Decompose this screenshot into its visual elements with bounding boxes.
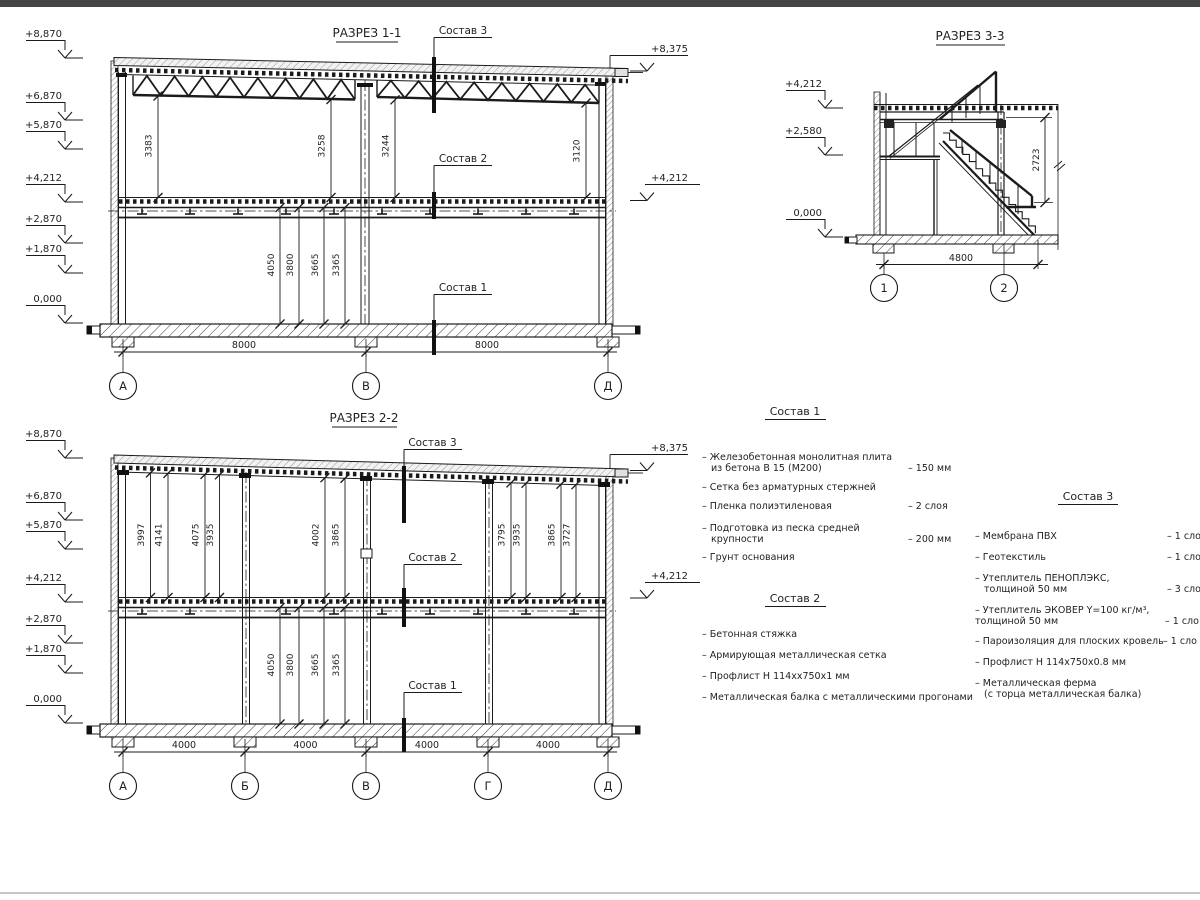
elevation-arrow-icon xyxy=(647,463,654,471)
dimension-text: 3935 xyxy=(513,524,523,547)
edge-beam-cap xyxy=(845,237,849,243)
callout-label: Состав 3 xyxy=(408,437,456,449)
dimension-text: 3800 xyxy=(286,253,296,276)
roof-band xyxy=(114,58,628,77)
axis-label: 1 xyxy=(880,281,887,295)
callout-label: Состав 2 xyxy=(408,552,456,564)
elevation-arrow-icon xyxy=(65,50,72,58)
section-title: РАЗРЕЗ 2-2 xyxy=(329,411,398,425)
elevation-arrow-icon xyxy=(647,63,654,71)
dimension-text: 3244 xyxy=(382,134,392,157)
elevation-value: +8,870 xyxy=(25,29,62,40)
dimension-text: 3997 xyxy=(137,524,147,547)
sostav-marker-bar xyxy=(432,57,436,113)
wall-hatch xyxy=(606,469,613,725)
elevation-arrow-icon xyxy=(65,315,72,323)
elevation-arrow-icon xyxy=(58,112,65,120)
list-item-value: – 3 сло xyxy=(1167,584,1200,595)
list-item-value: – 200 мм xyxy=(908,534,951,545)
elevation-arrow-icon xyxy=(818,229,825,237)
dimension-text: 3727 xyxy=(563,524,573,547)
slab-band xyxy=(100,724,612,737)
purlin-bracket xyxy=(117,470,129,475)
dimension-text: 8000 xyxy=(232,340,256,351)
list-item-text: – Бетонная стяжка xyxy=(702,629,797,640)
elevation-arrow-icon xyxy=(818,100,825,108)
column-splice xyxy=(361,549,372,558)
elevation-value: +4,212 xyxy=(25,573,62,584)
elevation-value: +8,870 xyxy=(25,429,62,440)
dimension-text: 2723 xyxy=(1032,149,1042,172)
list-item-text: – Пленка полиэтиленовая xyxy=(702,501,832,512)
list-item-text: из бетона В 15 (М200) xyxy=(711,463,822,474)
wall-hatch xyxy=(606,68,613,325)
elevation-value: +4,212 xyxy=(25,173,62,184)
elevation-arrow-icon xyxy=(58,50,65,58)
elevation-value: +8,375 xyxy=(651,44,688,55)
elevation-arrow-icon xyxy=(825,229,832,237)
axis-label: В xyxy=(362,779,370,793)
elevation-value: +5,870 xyxy=(25,520,62,531)
axis-label: Д xyxy=(604,779,613,793)
dimension-text: 4000 xyxy=(536,740,560,751)
list-item-value: – 150 мм xyxy=(908,463,951,474)
elevation-arrow-icon xyxy=(825,100,832,108)
list-item-value: – 1 сло xyxy=(1165,616,1199,627)
elevation-arrow-icon xyxy=(58,594,65,602)
list-item-text: – Мембрана ПВХ xyxy=(975,531,1057,542)
slab-band xyxy=(856,235,1058,244)
elevation-arrow-icon xyxy=(647,590,654,598)
list-item-text: крупности xyxy=(711,534,764,545)
elevation-value: +4,212 xyxy=(651,571,688,582)
list-item-text: – Профлист Н 114хх750х1 мм xyxy=(702,671,850,682)
edge-beam-cap xyxy=(87,726,92,734)
dimension-text: 4000 xyxy=(172,740,196,751)
elevation-arrow-icon xyxy=(65,450,72,458)
dimension-text: 4800 xyxy=(949,253,973,264)
dimension-text: 4002 xyxy=(312,524,322,547)
dimension-text: 3383 xyxy=(145,135,155,158)
callout-label: Состав 3 xyxy=(439,25,487,37)
sostav-marker-bar xyxy=(402,718,406,752)
elevation-value: 0,000 xyxy=(33,294,62,305)
edge-beam-cap xyxy=(87,326,92,334)
truss-bearing xyxy=(357,83,373,87)
list-item-text: (с торца металлическая балка) xyxy=(984,689,1141,700)
elevation-value: +4,212 xyxy=(785,79,822,90)
beam-bracket xyxy=(884,120,894,128)
list-item-text: толщиной 50 мм xyxy=(975,616,1058,627)
list-title: Состав 3 xyxy=(1063,490,1114,503)
elevation-value: +2,870 xyxy=(25,614,62,625)
elevation-value: +1,870 xyxy=(25,644,62,655)
elevation-arrow-icon xyxy=(640,590,647,598)
elevation-arrow-icon xyxy=(640,63,647,71)
roof-eave-cap xyxy=(615,69,628,77)
elevation-value: +1,870 xyxy=(25,244,62,255)
section-3-3: РАЗРЕЗ 3-3+4,212+2,5800,0002723480012 xyxy=(785,29,1065,302)
elevation-arrow-icon xyxy=(58,141,65,149)
elevation-value: +2,870 xyxy=(25,214,62,225)
elevation-arrow-icon xyxy=(58,265,65,273)
dimension-text: 3665 xyxy=(311,654,321,677)
elevation-arrow-icon xyxy=(640,193,647,201)
construction-drawing-canvas: РАЗРЕЗ 1-1+8,870+6,870+5,870+4,212+2,870… xyxy=(0,0,1200,900)
list-title: Состав 2 xyxy=(770,592,821,605)
elevation-arrow-icon xyxy=(640,463,647,471)
elevation-arrow-icon xyxy=(65,541,72,549)
dimension-text: 8000 xyxy=(475,340,499,351)
dimension-text: 3365 xyxy=(332,254,342,277)
elevation-value: 0,000 xyxy=(793,208,822,219)
section-2-2: РАЗРЕЗ 2-2+8,870+6,870+5,870+4,212+2,870… xyxy=(25,411,700,800)
purlin-bracket xyxy=(360,476,372,481)
dimension-text: 4050 xyxy=(267,653,277,676)
elevation-arrow-icon xyxy=(58,635,65,643)
elevation-arrow-icon xyxy=(58,235,65,243)
list-item-text: – Утеплитель ЭКОВЕР Y=100 кг/м³, xyxy=(975,605,1149,616)
list-item-text: – Грунт основания xyxy=(702,552,795,563)
sostav-marker-bar xyxy=(402,466,406,523)
roof-eave-cap xyxy=(615,469,628,477)
dimension-text: 3665 xyxy=(311,254,321,277)
elevation-arrow-icon xyxy=(65,112,72,120)
dimension-text: 4000 xyxy=(415,740,439,751)
edge-beam-cap xyxy=(635,326,640,334)
elevation-arrow-icon xyxy=(65,512,72,520)
bottom-border-line xyxy=(0,892,1200,894)
callout-label: Состав 2 xyxy=(439,153,487,165)
elevation-arrow-icon xyxy=(58,665,65,673)
elevation-value: +8,375 xyxy=(651,443,688,454)
list-item-text: – Железобетонная монолитная плита xyxy=(702,452,892,463)
elevation-value: +6,870 xyxy=(25,491,62,502)
list-item-text: – Подготовка из песка средней xyxy=(702,523,860,534)
elevation-value: +4,212 xyxy=(651,173,688,184)
elevation-arrow-icon xyxy=(65,235,72,243)
elevation-arrow-icon xyxy=(65,265,72,273)
dimension-text: 3120 xyxy=(573,139,583,162)
list-item-value: – 1 сло xyxy=(1167,552,1200,563)
section-1-1: РАЗРЕЗ 1-1+8,870+6,870+5,870+4,212+2,870… xyxy=(25,25,700,400)
slab-band xyxy=(100,324,612,337)
dimension-text: 4000 xyxy=(293,740,317,751)
elevation-arrow-icon xyxy=(58,715,65,723)
beam-bracket xyxy=(996,120,1006,128)
list-item-text: – Металлическая балка с металлическими п… xyxy=(702,692,973,703)
footing xyxy=(873,244,894,253)
elevation-arrow-icon xyxy=(58,541,65,549)
axis-label: В xyxy=(362,379,370,393)
list-title: Состав 1 xyxy=(770,405,821,418)
elevation-arrow-icon xyxy=(647,193,654,201)
list-item-value: – 2 слоя xyxy=(908,501,948,512)
callout-label: Состав 1 xyxy=(439,282,487,294)
dimension-text: 4050 xyxy=(267,253,277,276)
dimension-text: 4075 xyxy=(192,524,202,547)
footing xyxy=(993,244,1014,253)
elevation-arrow-icon xyxy=(65,594,72,602)
wall-hatch xyxy=(874,92,880,237)
elevation-arrow-icon xyxy=(65,194,72,202)
elevation-arrow-icon xyxy=(818,147,825,155)
section-title: РАЗРЕЗ 1-1 xyxy=(332,26,401,40)
list-item-value: – 1 сло xyxy=(1167,531,1200,542)
elevation-value: +2,580 xyxy=(785,126,822,137)
section-title: РАЗРЕЗ 3-3 xyxy=(935,29,1004,43)
dimension-text: 3365 xyxy=(332,654,342,677)
elevation-arrow-icon xyxy=(65,141,72,149)
callout-label: Состав 1 xyxy=(408,680,456,692)
axis-label: А xyxy=(119,779,127,793)
elevation-value: 0,000 xyxy=(33,694,62,705)
wall-hatch xyxy=(111,61,118,325)
elevation-arrow-icon xyxy=(58,315,65,323)
dimension-text: 3258 xyxy=(318,134,328,157)
edge-beam-cap xyxy=(635,726,640,734)
dimension-text: 3800 xyxy=(286,653,296,676)
list-item-text: – Армирующая металлическая сетка xyxy=(702,650,887,661)
elevation-arrow-icon xyxy=(58,194,65,202)
top-border-band xyxy=(0,0,1200,7)
truss-chord xyxy=(377,97,599,103)
list-item-text: – Металлическая ферма xyxy=(975,678,1096,689)
elevation-arrow-icon xyxy=(58,450,65,458)
dimension-text: 3865 xyxy=(548,524,558,547)
axis-label: Г xyxy=(484,779,491,793)
list-item-text: – Пароизоляция для плоских кровель xyxy=(975,636,1164,647)
stair-steps xyxy=(943,133,1035,233)
list-item-text: толщиной 50 мм xyxy=(984,584,1067,595)
sostav-marker-bar xyxy=(432,192,436,219)
elevation-arrow-icon xyxy=(825,147,832,155)
elevation-arrow-icon xyxy=(65,665,72,673)
axis-label: Д xyxy=(604,379,613,393)
stair-stringer xyxy=(888,85,978,157)
dimension-text: 3865 xyxy=(332,524,342,547)
purlin-bracket xyxy=(239,473,251,478)
dimension-text: 3935 xyxy=(206,524,216,547)
purlin-bracket xyxy=(598,482,610,487)
elevation-arrow-icon xyxy=(65,715,72,723)
elevation-value: +6,870 xyxy=(25,91,62,102)
list-item-text: – Геотекстиль xyxy=(975,552,1046,563)
list-item-text: – Сетка без арматурных стержней xyxy=(702,482,876,493)
purlin-bracket xyxy=(482,479,494,484)
composition-lists: Состав 1– Железобетонная монолитная плит… xyxy=(702,405,1200,703)
sostav-marker-bar xyxy=(402,588,406,627)
axis-label: А xyxy=(119,379,127,393)
wall-hatch xyxy=(111,458,118,725)
list-item-text: – Утеплитель ПЕНОПЛЭКС, xyxy=(975,573,1110,584)
elevation-value: +5,870 xyxy=(25,120,62,131)
elevation-arrow-icon xyxy=(65,635,72,643)
elevation-arrow-icon xyxy=(58,512,65,520)
axis-label: Б xyxy=(241,779,249,793)
list-item-text: – Профлист Н 114х750х0.8 мм xyxy=(975,657,1126,668)
dimension-text: 4141 xyxy=(155,524,165,547)
dimension-text: 3795 xyxy=(498,524,508,547)
sostav-marker-bar xyxy=(432,320,436,355)
axis-label: 2 xyxy=(1000,281,1007,295)
list-item-value: – 1 сло xyxy=(1163,636,1197,647)
